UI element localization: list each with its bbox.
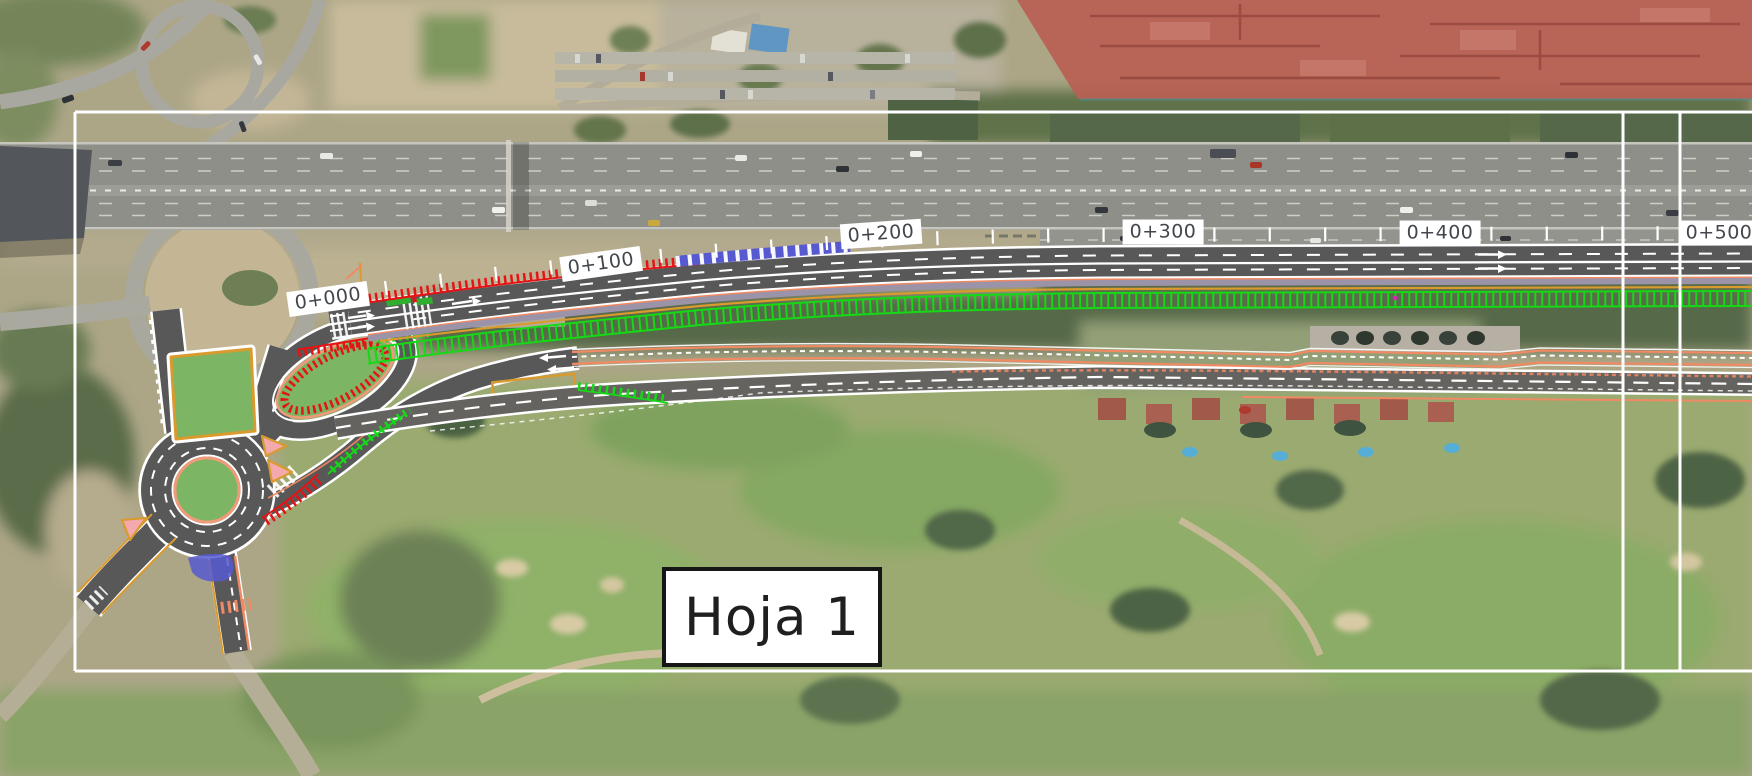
sheet-name-text: Hoja 1 bbox=[684, 587, 860, 648]
roundabout-center-island bbox=[175, 458, 239, 522]
building-overlay bbox=[1017, 0, 1752, 100]
sheet-name-box: Hoja 1 bbox=[662, 567, 882, 667]
overpass-bridge bbox=[0, 146, 92, 242]
station-label-5: 0+500 bbox=[1679, 221, 1752, 246]
station-label-4: 0+400 bbox=[1400, 221, 1481, 246]
survey-dot bbox=[1393, 296, 1397, 300]
blue-roof-building bbox=[748, 23, 789, 54]
station-label-3: 0+300 bbox=[1123, 220, 1204, 245]
footbridge bbox=[506, 140, 511, 232]
plan-viewport: 0+000 0+100 0+200 0+300 0+400 0+500 Hoja… bbox=[0, 0, 1752, 776]
square-island bbox=[171, 349, 255, 439]
